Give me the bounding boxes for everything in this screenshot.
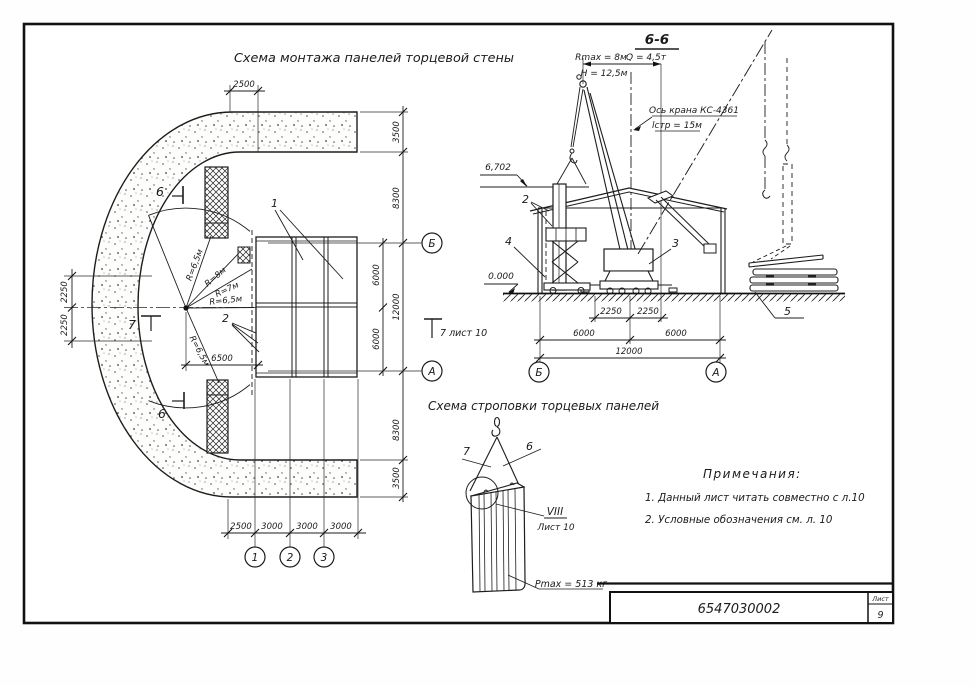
crane-height-label: Н = 12,5м [581,69,628,79]
detail-sheet-ref: Лист 10 [536,523,574,533]
plan-dim-left-top: 2250 [60,281,70,303]
plan-title: Схема монтажа панелей торцевой стены [234,51,514,66]
elev-dim-6000r: 6000 [665,329,687,339]
plan-dim-b3000a: 3000 [261,522,283,532]
elev-callout-5: 5 [784,305,791,318]
elev-callout-4: 4 [505,235,512,248]
axis-label-a: А [427,366,435,378]
plan-dim-b3000c: 3000 [330,522,352,532]
section-mark-6-top: 6 [156,184,164,199]
plan-callout-2: 2 [222,312,229,325]
strop-panel [471,483,525,592]
sheet-border [24,24,893,623]
elev-dim-6000l: 6000 [573,329,595,339]
axis-label-2: 2 [287,552,294,564]
hatched-section-lower [207,380,228,453]
plan-dim-12000: 12000 [392,293,402,320]
crane-boom-label: lстр = 15м [652,121,702,131]
crane-capacity-label: Q = 4,5т [626,53,667,63]
stamp-doc-number: 6547030002 [698,602,781,617]
drawing-canvas: Схема монтажа панелей торцевой стены R=6… [0,0,975,686]
plan-dim-left-bottom: 2250 [60,314,70,336]
axis-label-1: 1 [252,552,259,564]
plan-callout-1: 1 [271,197,278,210]
elev-dim-12000: 12000 [615,347,642,357]
panel-section-mark [238,247,250,263]
note-item-1: 1. Данный лист читать совместно с л.10 [645,492,865,504]
note-item-2: 2. Условные обозначения см. л. 10 [645,514,833,526]
crane-body [604,249,653,271]
axis-label-b: Б [428,238,435,250]
elev-callout-3: 3 [672,237,679,250]
notes-title: Примечания: [703,467,802,481]
plan-dim-3500-top: 3500 [392,121,402,143]
strop-callout-7: 7 [463,445,470,458]
elev-dim-2250r: 2250 [637,307,659,317]
elev-axis-label-b: Б [535,367,542,379]
drawing-sheet: Схема монтажа панелей торцевой стены R=6… [0,0,975,686]
plan-dim-8300-top: 8300 [392,187,402,209]
stamp-sheet-label: Лист [871,595,889,603]
plan-ref-note: 7 лист 10 [440,328,487,339]
hatched-section-upper [205,167,228,238]
plan-dim-b3000b: 3000 [296,522,318,532]
plan-dim-6000-bottom: 6000 [372,328,382,350]
stamp-sheet-number: 9 [877,610,883,621]
detail-roman: VIII [547,506,563,518]
elevation-title: 6-6 [645,32,669,48]
level-top-label: 6,702 [485,163,511,173]
section-mark-7: 7 [128,317,136,332]
section-mark-6-bottom: 6 [158,406,166,421]
crane-center-point [183,305,188,310]
panel-grid [238,230,357,395]
axis-label-3: 3 [321,552,328,564]
strop-callout-6: 6 [526,440,533,453]
level-zero-label: 0.000 [488,272,514,282]
plan-dim-opening: 6500 [211,354,233,364]
elev-callout-2: 2 [522,193,529,206]
plan-dim-top: 2500 [233,80,255,90]
elev-axis-label-a: А [711,367,719,379]
strop-title: Схема строповки торцевых панелей [428,399,659,413]
elev-dim-2250l: 2250 [600,307,622,317]
plan-dim-b2500: 2500 [230,522,252,532]
plan-dim-6000-top: 6000 [372,264,382,286]
plan-dim-3500-bottom: 3500 [392,467,402,489]
ground-hatch [503,295,845,302]
plan-dim-8300-bottom: 8300 [392,419,402,441]
